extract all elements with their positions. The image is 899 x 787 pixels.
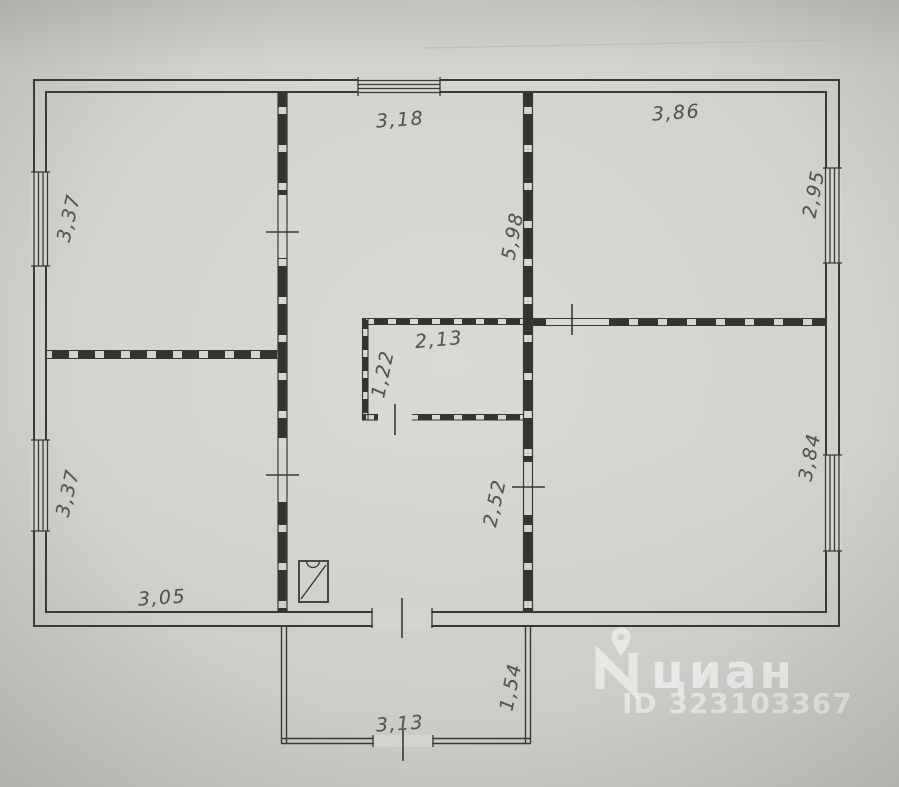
interior-wall-left xyxy=(278,93,287,612)
dimension-label: 3,18 xyxy=(375,107,425,132)
window-top xyxy=(358,77,440,96)
dimension-label: 2,13 xyxy=(414,327,464,353)
window-right-lower xyxy=(823,455,842,551)
partition-wall-left xyxy=(46,351,278,359)
dimension-label: 3,05 xyxy=(137,585,187,610)
dimension-label: 3,13 xyxy=(375,711,425,736)
floorplan-photo: 3,183,863,372,955,982,131,223,372,523,84… xyxy=(0,0,899,787)
partition-wall-right xyxy=(533,319,826,326)
paper-fold-line xyxy=(424,40,837,48)
sink-icon xyxy=(299,561,328,602)
dimension-label: 3,86 xyxy=(651,100,701,125)
window-left-upper xyxy=(31,172,50,266)
interior-wall-center xyxy=(524,93,533,612)
floorplan-drawing xyxy=(0,0,899,787)
window-left-lower xyxy=(31,440,50,531)
